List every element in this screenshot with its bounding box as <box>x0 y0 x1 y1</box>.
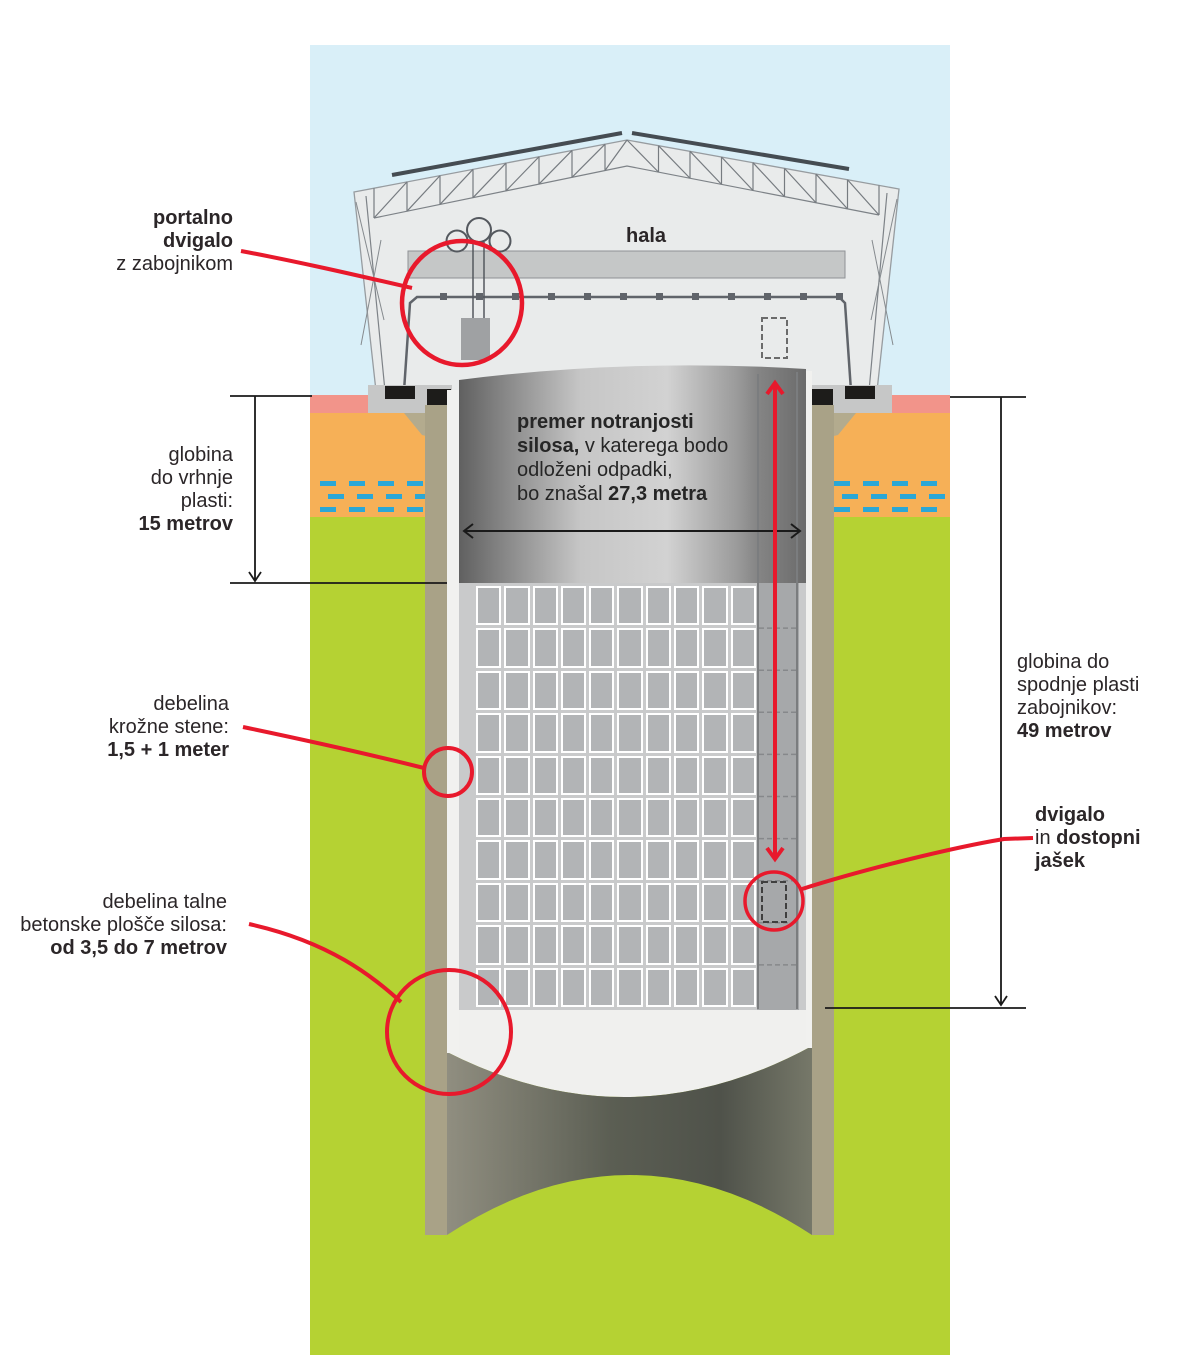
label-line: betonske plošče silosa: <box>20 914 227 937</box>
label-floor-thickness: debelina talne betonske plošče silosa: o… <box>20 891 227 960</box>
pointer-floor-thickness <box>249 924 401 1002</box>
label-line: jašek <box>1035 850 1141 873</box>
label-line: debelina <box>107 693 229 716</box>
label-hall: hala <box>600 225 692 248</box>
container-position-outline-hall <box>762 318 787 358</box>
depth-15m-dimension <box>230 396 447 583</box>
red-annotations <box>241 241 1033 1094</box>
label-value: od 3,5 do 7 metrov <box>20 937 227 960</box>
label-portal-crane: portalno dvigalo z zabojnikom <box>116 207 233 276</box>
label-line: premer notranjosti <box>517 410 728 434</box>
label-line: do vrhnje <box>139 467 234 490</box>
label-line: odloženi odpadki, <box>517 458 728 482</box>
highlight-circle-crane <box>402 241 522 365</box>
label-diameter: premer notranjosti silosa, v katerega bo… <box>517 410 728 506</box>
label-depth-bottom: globina do spodnje plasti zabojnikov: 49… <box>1017 651 1139 743</box>
label-shaft: dvigalo in dostopni jašek <box>1035 804 1141 873</box>
pointer-wall-thickness <box>243 727 424 768</box>
label-line: portalno <box>116 207 233 230</box>
label-line: debelina talne <box>20 891 227 914</box>
label-line: bo znašal 27,3 metra <box>517 482 728 506</box>
label-depth-top: globina do vrhnje plasti: 15 metrov <box>139 444 234 536</box>
label-value: 1,5 + 1 meter <box>107 739 229 762</box>
label-line: zabojnikov: <box>1017 697 1139 720</box>
label-line: globina <box>139 444 234 467</box>
label-line: spodnje plasti <box>1017 674 1139 697</box>
highlight-circle-wall <box>424 748 472 796</box>
depth-49m-dimension <box>825 397 1026 1008</box>
label-value: 15 metrov <box>139 513 234 536</box>
label-line: globina do <box>1017 651 1139 674</box>
label-line: dvigalo <box>116 230 233 253</box>
container-position-outline-shaft <box>762 882 786 922</box>
highlight-circle-floor <box>387 970 511 1094</box>
pointer-shaft <box>802 838 1033 889</box>
label-value: 49 metrov <box>1017 720 1139 743</box>
pointer-portal-crane <box>241 251 412 288</box>
diagram-canvas: portalno dvigalo z zabojnikom hala globi… <box>0 0 1200 1371</box>
label-line: silosa, v katerega bodo <box>517 434 728 458</box>
label-line: krožne stene: <box>107 716 229 739</box>
label-line: in dostopni <box>1035 827 1141 850</box>
diameter-arrow <box>464 524 800 538</box>
label-line: dvigalo <box>1035 804 1141 827</box>
label-line: plasti: <box>139 490 234 513</box>
shaft-travel-arrow <box>767 383 783 859</box>
label-line: z zabojnikom <box>116 253 233 276</box>
label-wall-thickness: debelina krožne stene: 1,5 + 1 meter <box>107 693 229 762</box>
